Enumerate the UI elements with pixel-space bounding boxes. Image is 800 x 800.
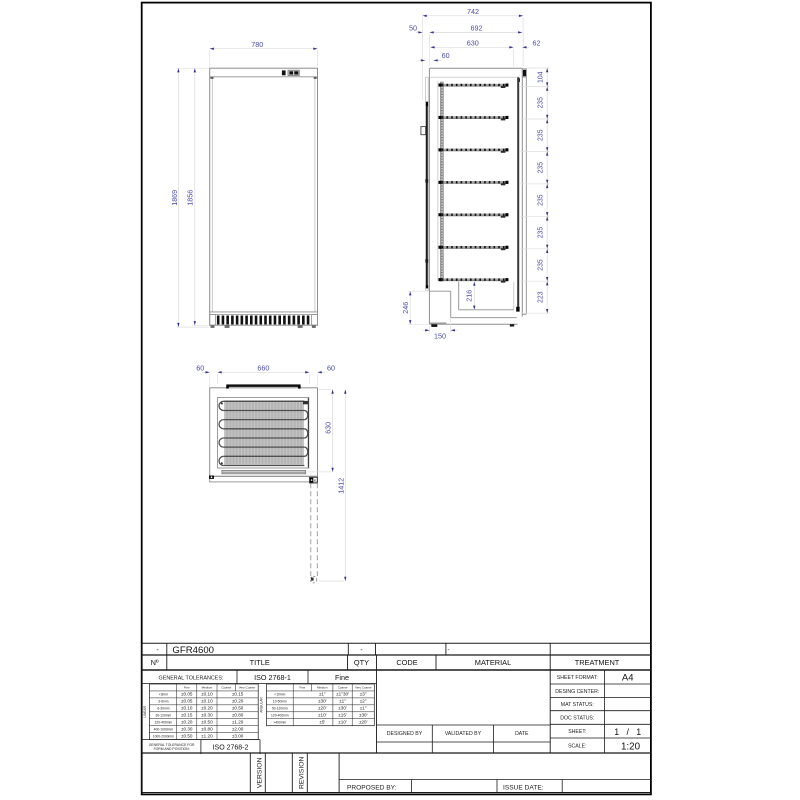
- svg-text:1000-2000mm: 1000-2000mm: [153, 734, 175, 738]
- svg-text:630: 630: [323, 422, 332, 434]
- svg-text:±30': ±30': [318, 699, 327, 704]
- svg-text:235: 235: [538, 259, 545, 271]
- svg-text:<10mm: <10mm: [274, 693, 285, 697]
- svg-text:±0.30: ±0.30: [181, 726, 193, 731]
- svg-text:PROPOSED BY:: PROPOSED BY:: [347, 784, 397, 791]
- svg-text:1 / 1: 1 / 1: [614, 727, 641, 737]
- svg-text:SHEET FORMAT:: SHEET FORMAT:: [557, 675, 598, 681]
- svg-text:Fine: Fine: [184, 686, 190, 690]
- svg-text:±5': ±5': [319, 720, 325, 725]
- svg-text:±10': ±10': [338, 720, 347, 725]
- svg-text:Fine: Fine: [300, 686, 306, 690]
- svg-text:MATERIAL: MATERIAL: [475, 658, 511, 667]
- svg-text:780: 780: [251, 40, 263, 49]
- svg-text:TREATMENT: TREATMENT: [575, 658, 620, 667]
- svg-text:6-30mm: 6-30mm: [157, 707, 169, 711]
- svg-text:A4: A4: [622, 673, 634, 684]
- svg-text:235: 235: [538, 227, 545, 239]
- svg-text:DESING CENTER:: DESING CENTER:: [555, 689, 599, 695]
- svg-text:±30': ±30': [338, 706, 347, 711]
- svg-text:±0.10: ±0.10: [201, 699, 213, 704]
- svg-text:±3.00: ±3.00: [232, 733, 244, 738]
- svg-text:-: -: [448, 647, 450, 653]
- svg-text:±0.10: ±0.10: [201, 692, 213, 697]
- svg-text:30-120mm: 30-120mm: [156, 714, 172, 718]
- svg-text:3-6mm: 3-6mm: [158, 700, 169, 704]
- svg-text:±2°: ±2°: [360, 699, 367, 704]
- svg-text:216: 216: [464, 290, 473, 302]
- svg-text:1412: 1412: [337, 478, 346, 494]
- svg-text:ISO 2768-1: ISO 2768-1: [254, 673, 291, 682]
- svg-text:±0.80: ±0.80: [201, 726, 213, 731]
- svg-text:150: 150: [434, 332, 446, 341]
- svg-text:630: 630: [467, 39, 479, 48]
- svg-text:DATE: DATE: [515, 731, 529, 737]
- svg-text:±0.50: ±0.50: [201, 720, 213, 725]
- svg-text:1856: 1856: [186, 190, 195, 206]
- svg-text:TITLE: TITLE: [250, 658, 270, 667]
- svg-text:246: 246: [401, 302, 410, 314]
- svg-text:MAT STATUS:: MAT STATUS:: [561, 702, 594, 708]
- svg-text:±0.15: ±0.15: [232, 692, 244, 697]
- svg-text:742: 742: [467, 7, 479, 16]
- svg-text:60: 60: [327, 363, 335, 372]
- svg-text:Fine: Fine: [335, 673, 349, 682]
- svg-text:±0.50: ±0.50: [181, 733, 193, 738]
- svg-text:SCALE:: SCALE:: [568, 744, 586, 750]
- svg-text:223: 223: [538, 291, 545, 303]
- svg-text:±0.20: ±0.20: [232, 699, 244, 704]
- svg-text:60: 60: [442, 51, 450, 60]
- svg-text:120-400mm: 120-400mm: [271, 714, 289, 718]
- svg-text:50-120mm: 50-120mm: [272, 707, 288, 711]
- svg-text:104: 104: [538, 71, 545, 83]
- svg-text:±2.00: ±2.00: [232, 726, 244, 731]
- svg-text:±20': ±20': [359, 720, 368, 725]
- svg-text:DOC STATUS:: DOC STATUS:: [560, 716, 594, 722]
- svg-text:FORM AND POSITION:: FORM AND POSITION:: [154, 747, 190, 751]
- svg-text:>400mm: >400mm: [273, 721, 286, 725]
- svg-text:SHEET:: SHEET:: [568, 729, 586, 735]
- svg-text:62: 62: [533, 39, 541, 48]
- svg-text:±0.20: ±0.20: [201, 706, 213, 711]
- svg-text:Coarse: Coarse: [222, 686, 232, 690]
- svg-text:10-50mm: 10-50mm: [273, 700, 287, 704]
- svg-text:60: 60: [196, 363, 204, 372]
- svg-text:Medium: Medium: [317, 686, 328, 690]
- svg-text:Very Coarse: Very Coarse: [239, 686, 256, 690]
- svg-text:±10': ±10': [318, 713, 327, 718]
- svg-text:Medium: Medium: [202, 686, 213, 690]
- svg-text:QTY: QTY: [354, 658, 369, 667]
- svg-text:±1.20: ±1.20: [232, 720, 244, 725]
- svg-text:±1°30': ±1°30': [336, 692, 349, 697]
- svg-text:235: 235: [538, 162, 545, 174]
- svg-text:235: 235: [538, 97, 545, 109]
- svg-text:DESIGNED BY: DESIGNED BY: [387, 731, 423, 737]
- svg-text:±1.20: ±1.20: [201, 733, 213, 738]
- svg-text:<3mm: <3mm: [159, 693, 169, 697]
- svg-text:Very Coarse: Very Coarse: [355, 686, 372, 690]
- svg-text:GENERAL TOLERANCES:: GENERAL TOLERANCES:: [159, 675, 224, 681]
- svg-text:±0.05: ±0.05: [181, 699, 193, 704]
- svg-text:1869: 1869: [170, 190, 179, 206]
- svg-text:235: 235: [538, 129, 545, 141]
- svg-text:±0.20: ±0.20: [181, 720, 193, 725]
- svg-text:660: 660: [257, 363, 269, 372]
- svg-text:VERSION: VERSION: [256, 757, 263, 788]
- svg-text:Coarse: Coarse: [338, 686, 348, 690]
- svg-text:ANGULAR: ANGULAR: [260, 696, 264, 712]
- svg-text:120-400mm: 120-400mm: [155, 721, 173, 725]
- svg-text:Nº: Nº: [151, 658, 159, 667]
- svg-text:±1°: ±1°: [360, 706, 367, 711]
- svg-text:CODE: CODE: [396, 658, 417, 667]
- svg-text:±0.80: ±0.80: [232, 713, 244, 718]
- svg-text:ISO 2768-2: ISO 2768-2: [213, 745, 249, 752]
- svg-text:REVISION: REVISION: [298, 756, 305, 789]
- svg-text:1:20: 1:20: [621, 742, 641, 753]
- svg-text:±15': ±15': [338, 713, 347, 718]
- svg-text:235: 235: [538, 194, 545, 206]
- svg-text:LINEAR: LINEAR: [143, 705, 147, 717]
- svg-text:±0.50: ±0.50: [232, 706, 244, 711]
- svg-text:VALIDATED BY: VALIDATED BY: [445, 731, 482, 737]
- svg-text:±20': ±20': [318, 706, 327, 711]
- svg-text:ISSUE DATE:: ISSUE DATE:: [503, 784, 544, 791]
- svg-text:±0.15: ±0.15: [181, 713, 193, 718]
- svg-text:±30': ±30': [359, 713, 368, 718]
- svg-text:400-1000mm: 400-1000mm: [154, 727, 174, 731]
- svg-text:±0.05: ±0.05: [181, 692, 193, 697]
- svg-text:±1°: ±1°: [339, 699, 346, 704]
- svg-text:±3°: ±3°: [360, 692, 367, 697]
- svg-text:±1°: ±1°: [319, 692, 326, 697]
- svg-text:692: 692: [471, 24, 483, 33]
- svg-text:±0.30: ±0.30: [201, 713, 213, 718]
- svg-text:±0.10: ±0.10: [181, 706, 193, 711]
- svg-text:50: 50: [409, 24, 417, 33]
- svg-text:GFR4600: GFR4600: [172, 645, 214, 656]
